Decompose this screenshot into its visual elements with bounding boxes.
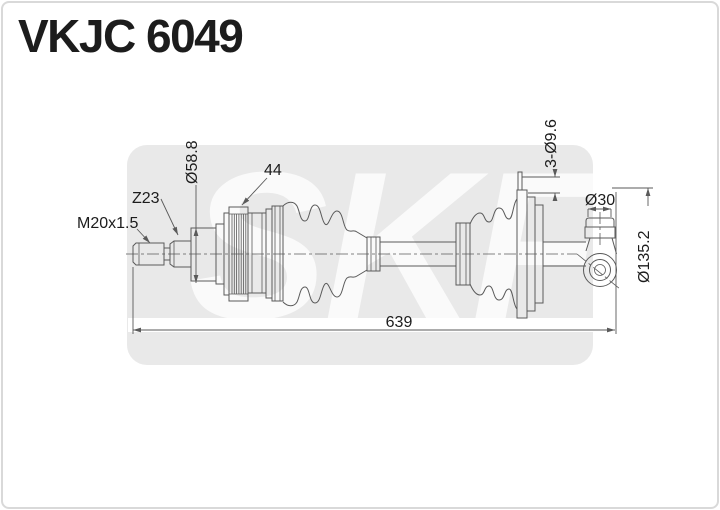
dim-flange-diameter: Ø135.2 bbox=[612, 188, 653, 283]
label-seat-diameter: Ø58.8 bbox=[184, 140, 201, 184]
label-bolt-holes: 3-Ø9.6 bbox=[543, 119, 560, 168]
label-spline-teeth: Z23 bbox=[132, 190, 160, 207]
label-stub-diameter: Ø30 bbox=[585, 192, 615, 209]
label-abs-ring-teeth: 44 bbox=[264, 162, 282, 179]
label-thread-spec: M20x1.5 bbox=[77, 215, 138, 232]
label-flange-diameter: Ø135.2 bbox=[636, 230, 653, 283]
label-total-length: 639 bbox=[386, 314, 413, 331]
technical-drawing: SKF bbox=[0, 0, 720, 510]
